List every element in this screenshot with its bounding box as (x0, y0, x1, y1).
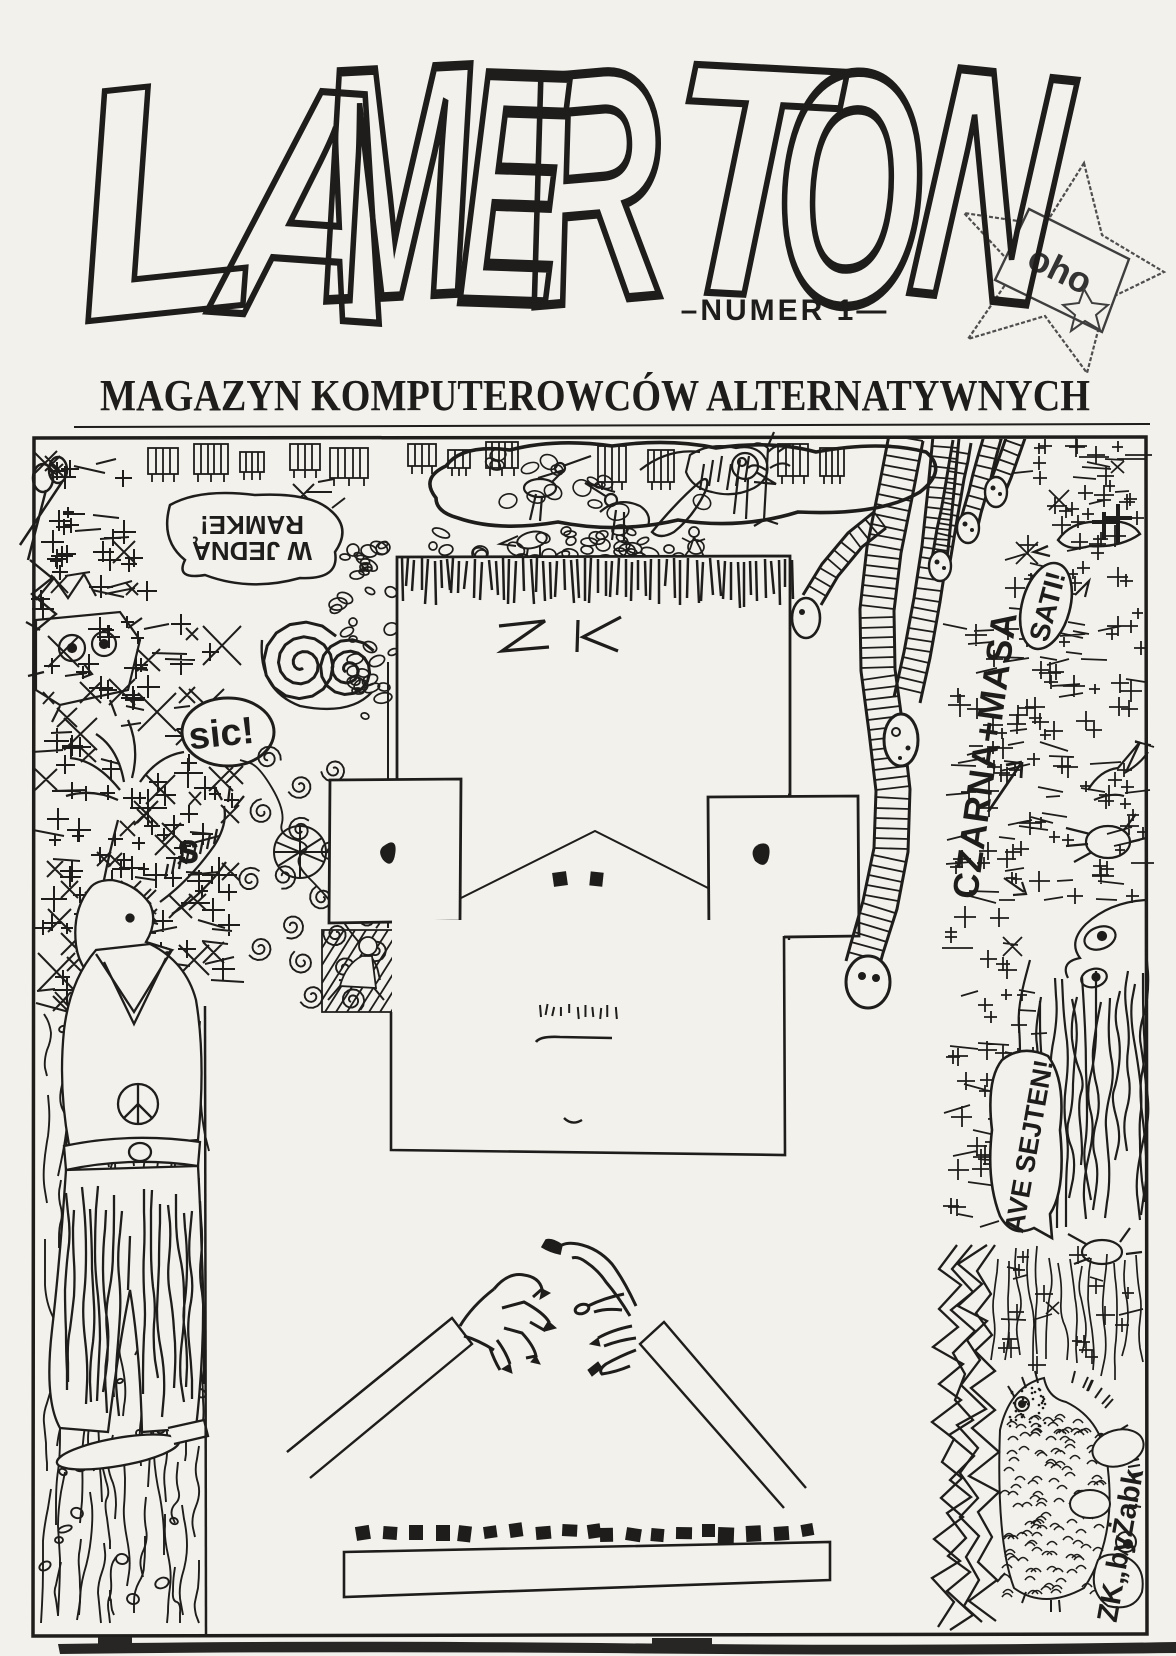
svg-text:sic!: sic! (187, 710, 257, 759)
svg-text:S: S (178, 836, 198, 869)
svg-text:MAGAZYN KOMPUTEROWCÓW ALTERNAT: MAGAZYN KOMPUTEROWCÓW ALTERNATYWNYCH (100, 371, 1090, 420)
svg-text:–NUMER 1—: –NUMER 1— (681, 294, 890, 327)
svg-text:RAMKE!: RAMKE! (200, 510, 304, 540)
